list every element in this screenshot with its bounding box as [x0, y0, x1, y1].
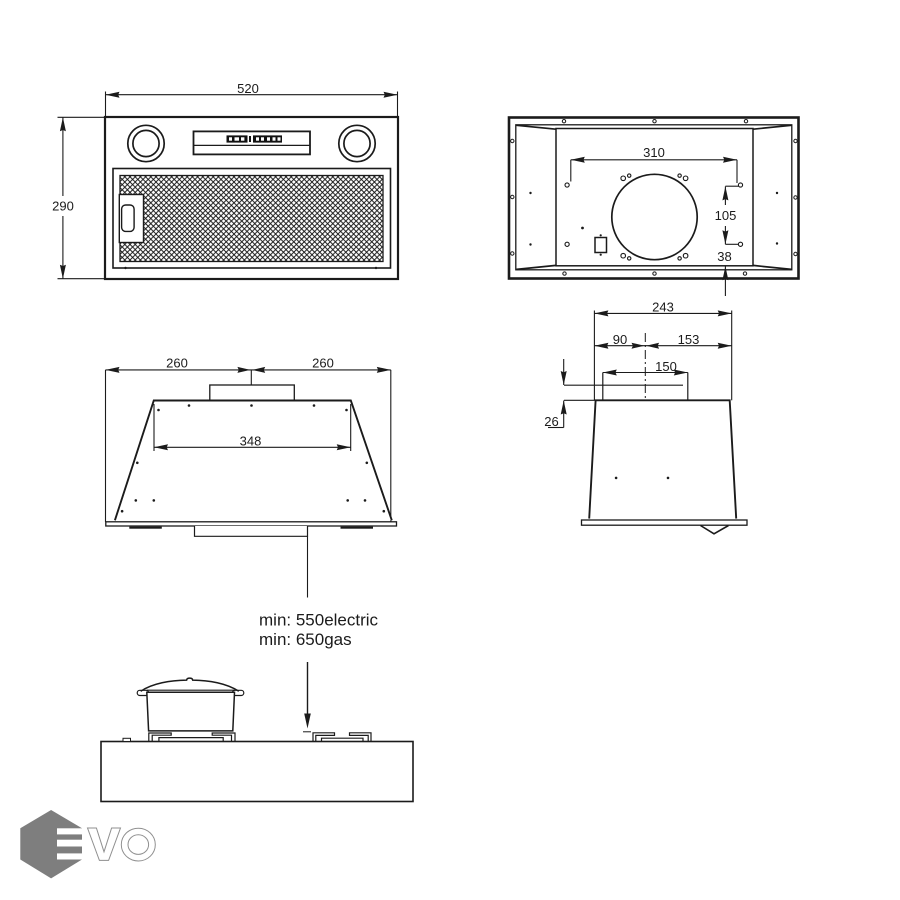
- svg-text:min: 650gas: min: 650gas: [259, 630, 352, 649]
- svg-text:105: 105: [715, 208, 737, 223]
- svg-text:520: 520: [237, 81, 259, 96]
- svg-text:90: 90: [613, 332, 627, 347]
- svg-text:150: 150: [655, 359, 677, 374]
- svg-text:290: 290: [52, 199, 74, 214]
- svg-text:153: 153: [678, 332, 700, 347]
- svg-text:min: 550electric: min: 550electric: [259, 611, 379, 630]
- svg-text:26: 26: [544, 414, 558, 429]
- svg-text:243: 243: [652, 300, 674, 315]
- svg-text:260: 260: [166, 356, 188, 371]
- svg-text:348: 348: [240, 433, 262, 448]
- svg-text:260: 260: [312, 356, 334, 371]
- svg-text:38: 38: [717, 249, 731, 264]
- svg-text:310: 310: [643, 145, 665, 160]
